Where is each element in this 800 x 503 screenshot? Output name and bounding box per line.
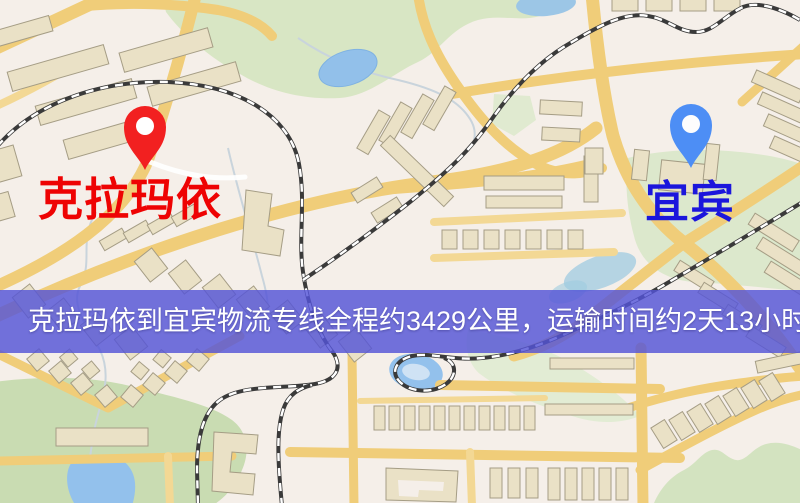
origin-pin-hole — [136, 117, 154, 135]
destination-pin-hole — [682, 115, 700, 133]
route-banner-text: 克拉玛依到宜宾物流专线全程约3429公里，运输时间约2天13小时. — [28, 306, 800, 336]
origin-pin-body — [124, 106, 166, 170]
map-canvas[interactable]: 克拉玛依 宜宾 克拉玛依到宜宾物流专线全程约3429公里，运输时间约2天13小时… — [0, 0, 800, 503]
map-artwork — [0, 0, 800, 503]
route-banner: 克拉玛依到宜宾物流专线全程约3429公里，运输时间约2天13小时. — [0, 290, 800, 353]
origin-label: 克拉玛依 — [38, 177, 222, 222]
origin-pin-icon[interactable] — [124, 106, 166, 170]
destination-label: 宜宾 — [645, 181, 735, 225]
